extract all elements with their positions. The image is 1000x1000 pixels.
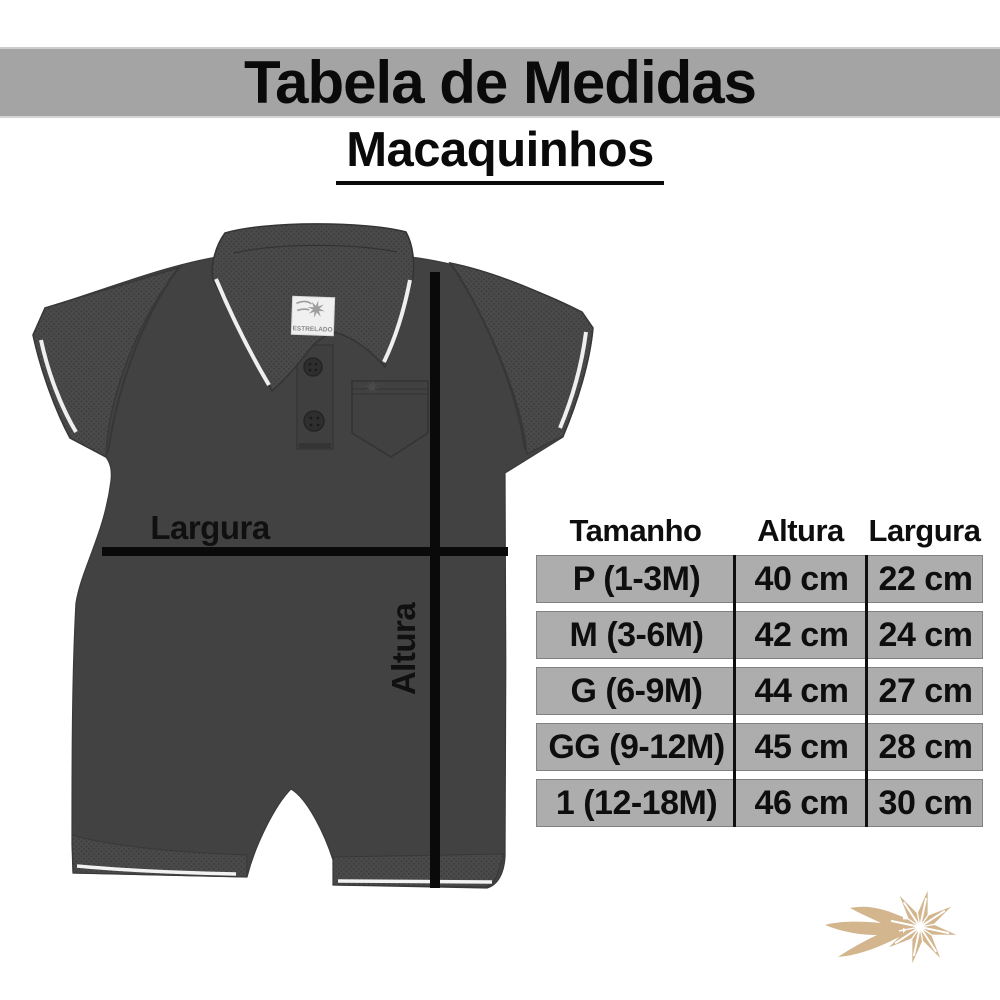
largura-cell: 24 cm — [867, 612, 984, 658]
largura-cell: 28 cm — [867, 724, 984, 770]
altura-cell: 44 cm — [736, 668, 867, 714]
size-cell: P (1-3M) — [537, 556, 736, 602]
buttonhole-bar — [299, 443, 331, 448]
width-label: Largura — [150, 509, 269, 547]
height-measure-line — [430, 272, 440, 888]
table-row: 1 (12-18M) 46 cm 30 cm — [536, 779, 983, 827]
size-table: Tamanho Altura Largura P (1-3M) 40 cm 22… — [536, 510, 983, 830]
title-band: Tabela de Medidas — [0, 47, 1000, 118]
shooting-star-icon — [805, 860, 1000, 1000]
size-table-header: Tamanho Altura Largura — [536, 510, 983, 552]
height-label: Altura — [385, 603, 423, 695]
table-row: GG (9-12M) 45 cm 28 cm — [536, 723, 983, 771]
header-tamanho: Tamanho — [536, 510, 735, 552]
bottom-button — [304, 411, 324, 431]
table-column-separator — [733, 555, 736, 827]
table-row: M (3-6M) 42 cm 24 cm — [536, 611, 983, 659]
table-row: P (1-3M) 40 cm 22 cm — [536, 555, 983, 603]
size-cell: 1 (12-18M) — [537, 780, 736, 826]
subtitle-wrap: Macaquinhos — [0, 122, 1000, 185]
size-cell: G (6-9M) — [537, 668, 736, 714]
largura-cell: 22 cm — [867, 556, 984, 602]
table-column-separator — [865, 555, 868, 827]
table-row: G (6-9M) 44 cm 27 cm — [536, 667, 983, 715]
page-title: Tabela de Medidas — [244, 48, 756, 117]
header-largura: Largura — [866, 510, 983, 552]
size-chart-page: Tabela de Medidas Macaquinhos — [0, 0, 1000, 1000]
top-button — [304, 358, 322, 376]
page-subtitle: Macaquinhos — [336, 122, 664, 185]
largura-cell: 30 cm — [867, 780, 984, 826]
size-cell: GG (9-12M) — [537, 724, 736, 770]
brand-tag: ESTRELADO — [291, 296, 334, 335]
comet-tail — [825, 907, 903, 957]
altura-cell: 40 cm — [736, 556, 867, 602]
right-leg-piping — [338, 881, 492, 882]
size-cell: M (3-6M) — [537, 612, 736, 658]
header-altura: Altura — [735, 510, 866, 552]
altura-cell: 46 cm — [736, 780, 867, 826]
brand-tag-text: ESTRELADO — [292, 325, 332, 333]
width-measure-line — [102, 547, 508, 556]
altura-cell: 42 cm — [736, 612, 867, 658]
largura-cell: 27 cm — [867, 668, 984, 714]
altura-cell: 45 cm — [736, 724, 867, 770]
